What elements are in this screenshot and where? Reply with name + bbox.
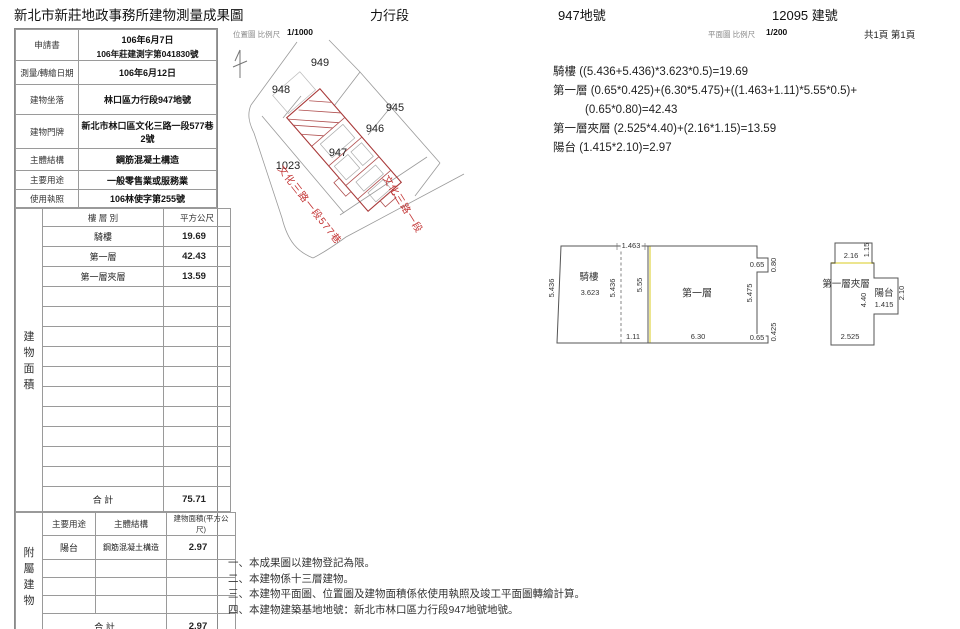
annex-structure: 鋼筋混凝土構造: [96, 536, 167, 560]
side-char: 建: [24, 576, 35, 592]
info-value: 106林使字第255號: [79, 190, 217, 208]
side-label-cell: 附 屬 建 物: [16, 513, 43, 629]
location-map-scale-value: 1/1000: [287, 27, 313, 37]
side-label-cell: 建 物 面 積: [16, 209, 43, 512]
info-label: 建物坐落: [16, 85, 79, 115]
dim-mezz-top-width: 2.16: [843, 252, 860, 260]
empty-row: [16, 307, 231, 327]
table-row: 測量/轉繪日期 106年6月12日: [16, 61, 217, 85]
note-line: 一、本成果圖以建物登記為限。: [228, 556, 585, 572]
floor-col-header: 樓 層 別: [43, 209, 164, 227]
land-number-label: 947地號: [558, 5, 606, 24]
land-section-label: 力行段: [370, 5, 409, 24]
side-label-annex-building: 附 屬 建 物: [18, 544, 40, 608]
floor-name: 第一層: [43, 247, 164, 267]
info-label: 申請書: [16, 30, 79, 61]
parcel-boundaries: [249, 40, 464, 258]
empty-row: [16, 387, 231, 407]
empty-row: [16, 327, 231, 347]
building-info-table: 申請書 106年6月7日 106年莊建測字第041830號 測量/轉繪日期 10…: [14, 28, 218, 629]
table-row: 陽台 鋼筋混凝土構造 2.97: [16, 536, 236, 560]
calc-line: 第一層 (0.65*0.425)+(6.30*5.475)+((1.463+1.…: [553, 82, 953, 101]
use-col-header: 主要用途: [43, 513, 96, 536]
dim-notch-height: 0.80: [770, 258, 778, 273]
info-value: 新北市林口區文化三路一段577巷2號: [79, 115, 217, 149]
table-row: 合 計 75.71: [16, 487, 231, 512]
side-char: 物: [24, 344, 35, 360]
empty-row: [16, 427, 231, 447]
table-row: 主體結構 鋼筋混凝土構造: [16, 149, 217, 171]
side-label-building-area: 建 物 面 積: [18, 328, 40, 392]
table-row: 主要用途 一般零售業或服務業: [16, 171, 217, 190]
info-label: 測量/轉繪日期: [16, 61, 79, 85]
info-value: 一般零售業或服務業: [79, 171, 217, 190]
dim-right-height: 5.475: [746, 284, 754, 303]
dim-arcade-width: 3.623: [580, 289, 601, 297]
side-char: 屬: [24, 560, 35, 576]
dim-balcony-width: 1.415: [874, 301, 895, 309]
note-line: 三、本建物平面圖、位置圖及建物面積係依使用執照及竣工平面圖轉繪計算。: [228, 587, 585, 603]
empty-row: [16, 467, 231, 487]
side-char: 積: [24, 376, 35, 392]
info-value: 林口區力行段947地號: [79, 85, 217, 115]
floor-area-value: 42.43: [164, 247, 231, 267]
page-title: 新北市新莊地政事務所建物測量成果圖: [14, 4, 244, 24]
dim-left-height: 5.436: [548, 279, 556, 298]
location-map: 949 948 945 946 947 1023 文化三路一段577巷 文化三路…: [225, 38, 480, 275]
table-row: 第一層夾層 13.59: [16, 267, 231, 287]
balcony-room-label: 陽台: [874, 285, 893, 299]
area-col-header: 建物面積(平方公尺): [167, 513, 236, 536]
area-calculations: 騎樓 ((5.436+5.436)*3.623*0.5)=19.69 第一層 (…: [553, 63, 953, 158]
empty-row: [16, 347, 231, 367]
dim-mezz-bottom-width: 2.525: [840, 333, 861, 341]
dim-bottom-width: 6.30: [690, 333, 707, 341]
parcel-label-946: 946: [366, 123, 384, 135]
arcade-room-label: 騎樓: [579, 269, 598, 283]
dim-step-width: 0.65: [749, 334, 766, 342]
floor-plan-scale-value: 1/200: [766, 27, 787, 37]
side-char: 建: [24, 328, 35, 344]
dim-bottom-left: 1.11: [625, 333, 641, 341]
hatch-lines: [288, 90, 391, 199]
parcel-label-945: 945: [386, 102, 404, 114]
empty-row: [16, 560, 236, 578]
table-row: 使用執照 106林使字第255號: [16, 190, 217, 208]
info-value: 鋼筋混凝土構造: [79, 149, 217, 171]
annex-building-table: 附 屬 建 物 主要用途 主體結構 建物面積(平方公尺) 陽台 鋼筋混凝土構造 …: [15, 512, 236, 629]
dim-dash-height: 5.436: [609, 279, 617, 298]
dim-mezz-top-height: 1.15: [863, 243, 871, 258]
info-rows-table: 申請書 106年6月7日 106年莊建測字第041830號 測量/轉繪日期 10…: [15, 29, 217, 208]
road-label-wenhua-rd: 文化三路一段: [380, 173, 426, 236]
unit-col-header: 平方公尺: [164, 209, 231, 227]
structure-col-header: 主體結構: [96, 513, 167, 536]
notes-block: 一、本成果圖以建物登記為限。 二、本建物係十三層建物。 三、本建物平面圖、位置圖…: [228, 556, 585, 618]
empty-row: [16, 447, 231, 467]
table-row: 建物坐落 林口區力行段947地號: [16, 85, 217, 115]
empty-row: [16, 287, 231, 307]
floor-plan-scale-label: 平面圖 比例尺: [708, 29, 755, 40]
north-arrow-icon: [233, 50, 247, 78]
parcel-label-948: 948: [272, 84, 290, 96]
table-row: 第一層 42.43: [16, 247, 231, 267]
floor-area-value: 13.59: [164, 267, 231, 287]
table-row: 申請書 106年6月7日 106年莊建測字第041830號: [16, 30, 217, 61]
annex-total-value: 2.97: [167, 614, 236, 629]
page-count-label: 共1頁 第1頁: [864, 27, 915, 41]
side-char: 附: [24, 544, 35, 560]
empty-row: [16, 596, 236, 614]
floor-area-value: 19.69: [164, 227, 231, 247]
floor-name: 騎樓: [43, 227, 164, 247]
dim-balcony-height: 2.10: [898, 286, 906, 301]
parcel-label-949: 949: [311, 57, 329, 69]
first-floor-room-label: 第一層: [682, 285, 712, 300]
info-value: 106年6月7日: [121, 35, 173, 45]
building-number-label: 12095 建號: [772, 5, 838, 24]
dim-step-height: 0.425: [770, 323, 778, 342]
info-label: 主體結構: [16, 149, 79, 171]
table-row: 建 物 面 積 樓 層 別 平方公尺: [16, 209, 231, 227]
calc-line: (0.65*0.80)=42.43: [553, 101, 953, 120]
side-char: 物: [24, 592, 35, 608]
floor-area-table: 建 物 面 積 樓 層 別 平方公尺 騎樓 19.69 第一層 42.43 第一…: [15, 208, 231, 512]
side-char: 面: [24, 360, 35, 376]
table-row: 建物門牌 新北市林口區文化三路一段577巷2號: [16, 115, 217, 149]
info-value: 106年6月12日: [79, 61, 217, 85]
road-label-lane577: 文化三路一段577巷: [275, 163, 345, 247]
info-label: 使用執照: [16, 190, 79, 208]
survey-document-page: 新北市新莊地政事務所建物測量成果圖 力行段 947地號 12095 建號 申請書…: [0, 0, 960, 629]
total-label: 合 計: [43, 487, 164, 512]
annex-area-value: 2.97: [167, 536, 236, 560]
empty-row: [16, 367, 231, 387]
note-line: 二、本建物係十三層建物。: [228, 572, 585, 588]
floor-name: 第一層夾層: [43, 267, 164, 287]
info-label: 建物門牌: [16, 115, 79, 149]
empty-row: [16, 407, 231, 427]
calc-line: 陽台 (1.415*2.10)=2.97: [553, 139, 953, 158]
note-line: 四、本建物建築基地地號：新北市林口區力行段947地號地號。: [228, 603, 585, 619]
mezzanine-room-label: 第一層夾層: [822, 276, 870, 290]
dim-mid-height: 5.55: [636, 278, 644, 293]
annex-total-label: 合 計: [43, 614, 167, 629]
dim-notch-width: 0.65: [749, 261, 766, 269]
dim-mezz-height: 4.40: [860, 293, 868, 308]
info-label: 主要用途: [16, 171, 79, 190]
total-area-value: 75.71: [164, 487, 231, 512]
table-row: 騎樓 19.69: [16, 227, 231, 247]
empty-row: [16, 578, 236, 596]
parcel-label-947: 947: [329, 147, 347, 159]
dim-top-width: 1.463: [621, 242, 642, 250]
table-row: 附 屬 建 物 主要用途 主體結構 建物面積(平方公尺): [16, 513, 236, 536]
table-row: 合 計 2.97: [16, 614, 236, 629]
info-value-2: 106年莊建測字第041830號: [81, 48, 214, 60]
annex-use: 陽台: [43, 536, 96, 560]
calc-line: 第一層夾層 (2.525*4.40)+(2.16*1.15)=13.59: [553, 120, 953, 139]
calc-line: 騎樓 ((5.436+5.436)*3.623*0.5)=19.69: [553, 63, 953, 82]
